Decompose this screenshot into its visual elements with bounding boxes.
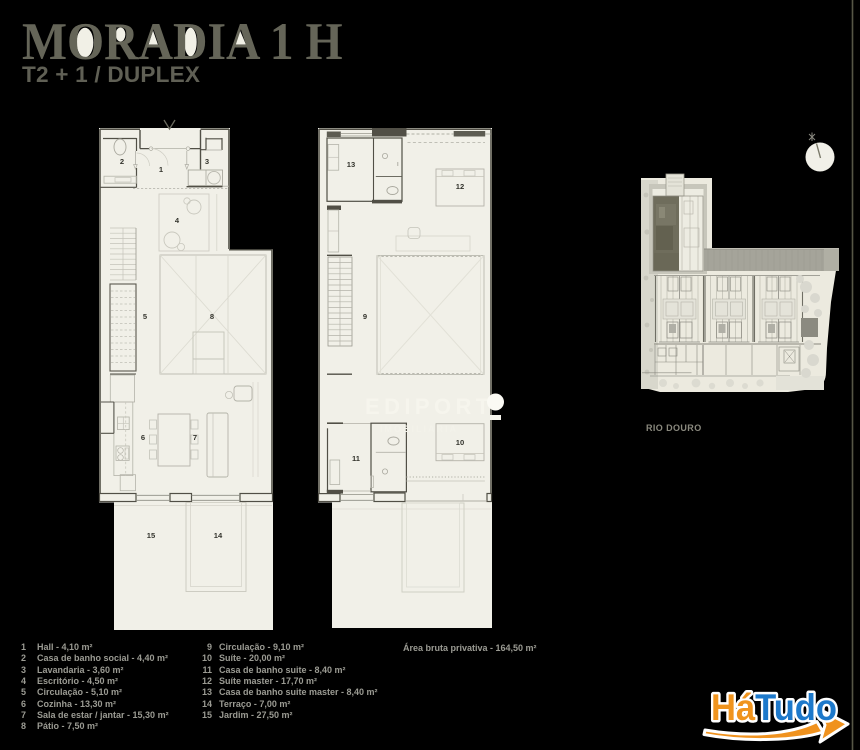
svg-text:10: 10 — [456, 438, 464, 447]
svg-text:3: 3 — [205, 157, 209, 166]
svg-text:HáTudo: HáTudo — [711, 687, 837, 728]
svg-text:12: 12 — [456, 182, 464, 191]
svg-text:11: 11 — [352, 454, 361, 463]
svg-text:15: 15 — [147, 531, 156, 540]
svg-text:13: 13 — [347, 160, 355, 169]
svg-text:9: 9 — [363, 312, 367, 321]
svg-text:2: 2 — [120, 157, 124, 166]
svg-text:IMOBILIARIA: IMOBILIARIA — [380, 424, 458, 434]
svg-text:EDIPORT: EDIPORT — [365, 394, 494, 419]
svg-text:8: 8 — [210, 312, 214, 321]
svg-text:7: 7 — [193, 433, 197, 442]
svg-text:6: 6 — [141, 433, 145, 442]
svg-text:14: 14 — [214, 531, 223, 540]
